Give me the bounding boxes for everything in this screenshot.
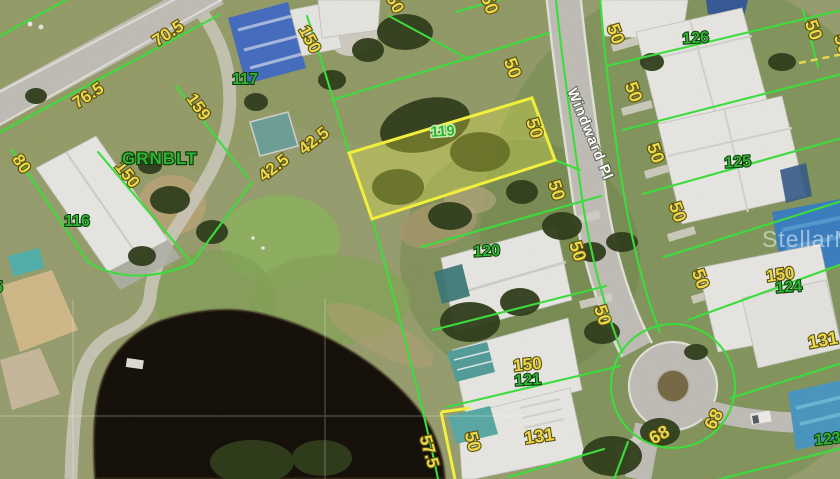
parcel-map-container[interactable]: 70.576.58015915015015042.542.55050505050…: [0, 0, 840, 479]
aerial-map-canvas: 70.576.58015915015015042.542.55050505050…: [0, 0, 840, 479]
lot-number-label: 117: [232, 71, 258, 88]
lot-number-label: 125: [724, 153, 752, 172]
lot-number-label: 123: [813, 430, 840, 450]
lot-number-label: 120: [473, 242, 501, 260]
dimension-label: 131: [523, 424, 556, 448]
watermark-text: StellarMLS: [762, 226, 840, 252]
lot-number-label: 115: [0, 279, 3, 296]
greenbelt-label: GRNBLT: [122, 149, 198, 168]
lot-number-label: 126: [682, 29, 710, 48]
lot-number-label: 121: [514, 371, 542, 390]
lot-number-label: 124: [775, 278, 803, 297]
lot-number-label: 119: [430, 122, 455, 141]
lot-number-label: 116: [64, 213, 90, 230]
